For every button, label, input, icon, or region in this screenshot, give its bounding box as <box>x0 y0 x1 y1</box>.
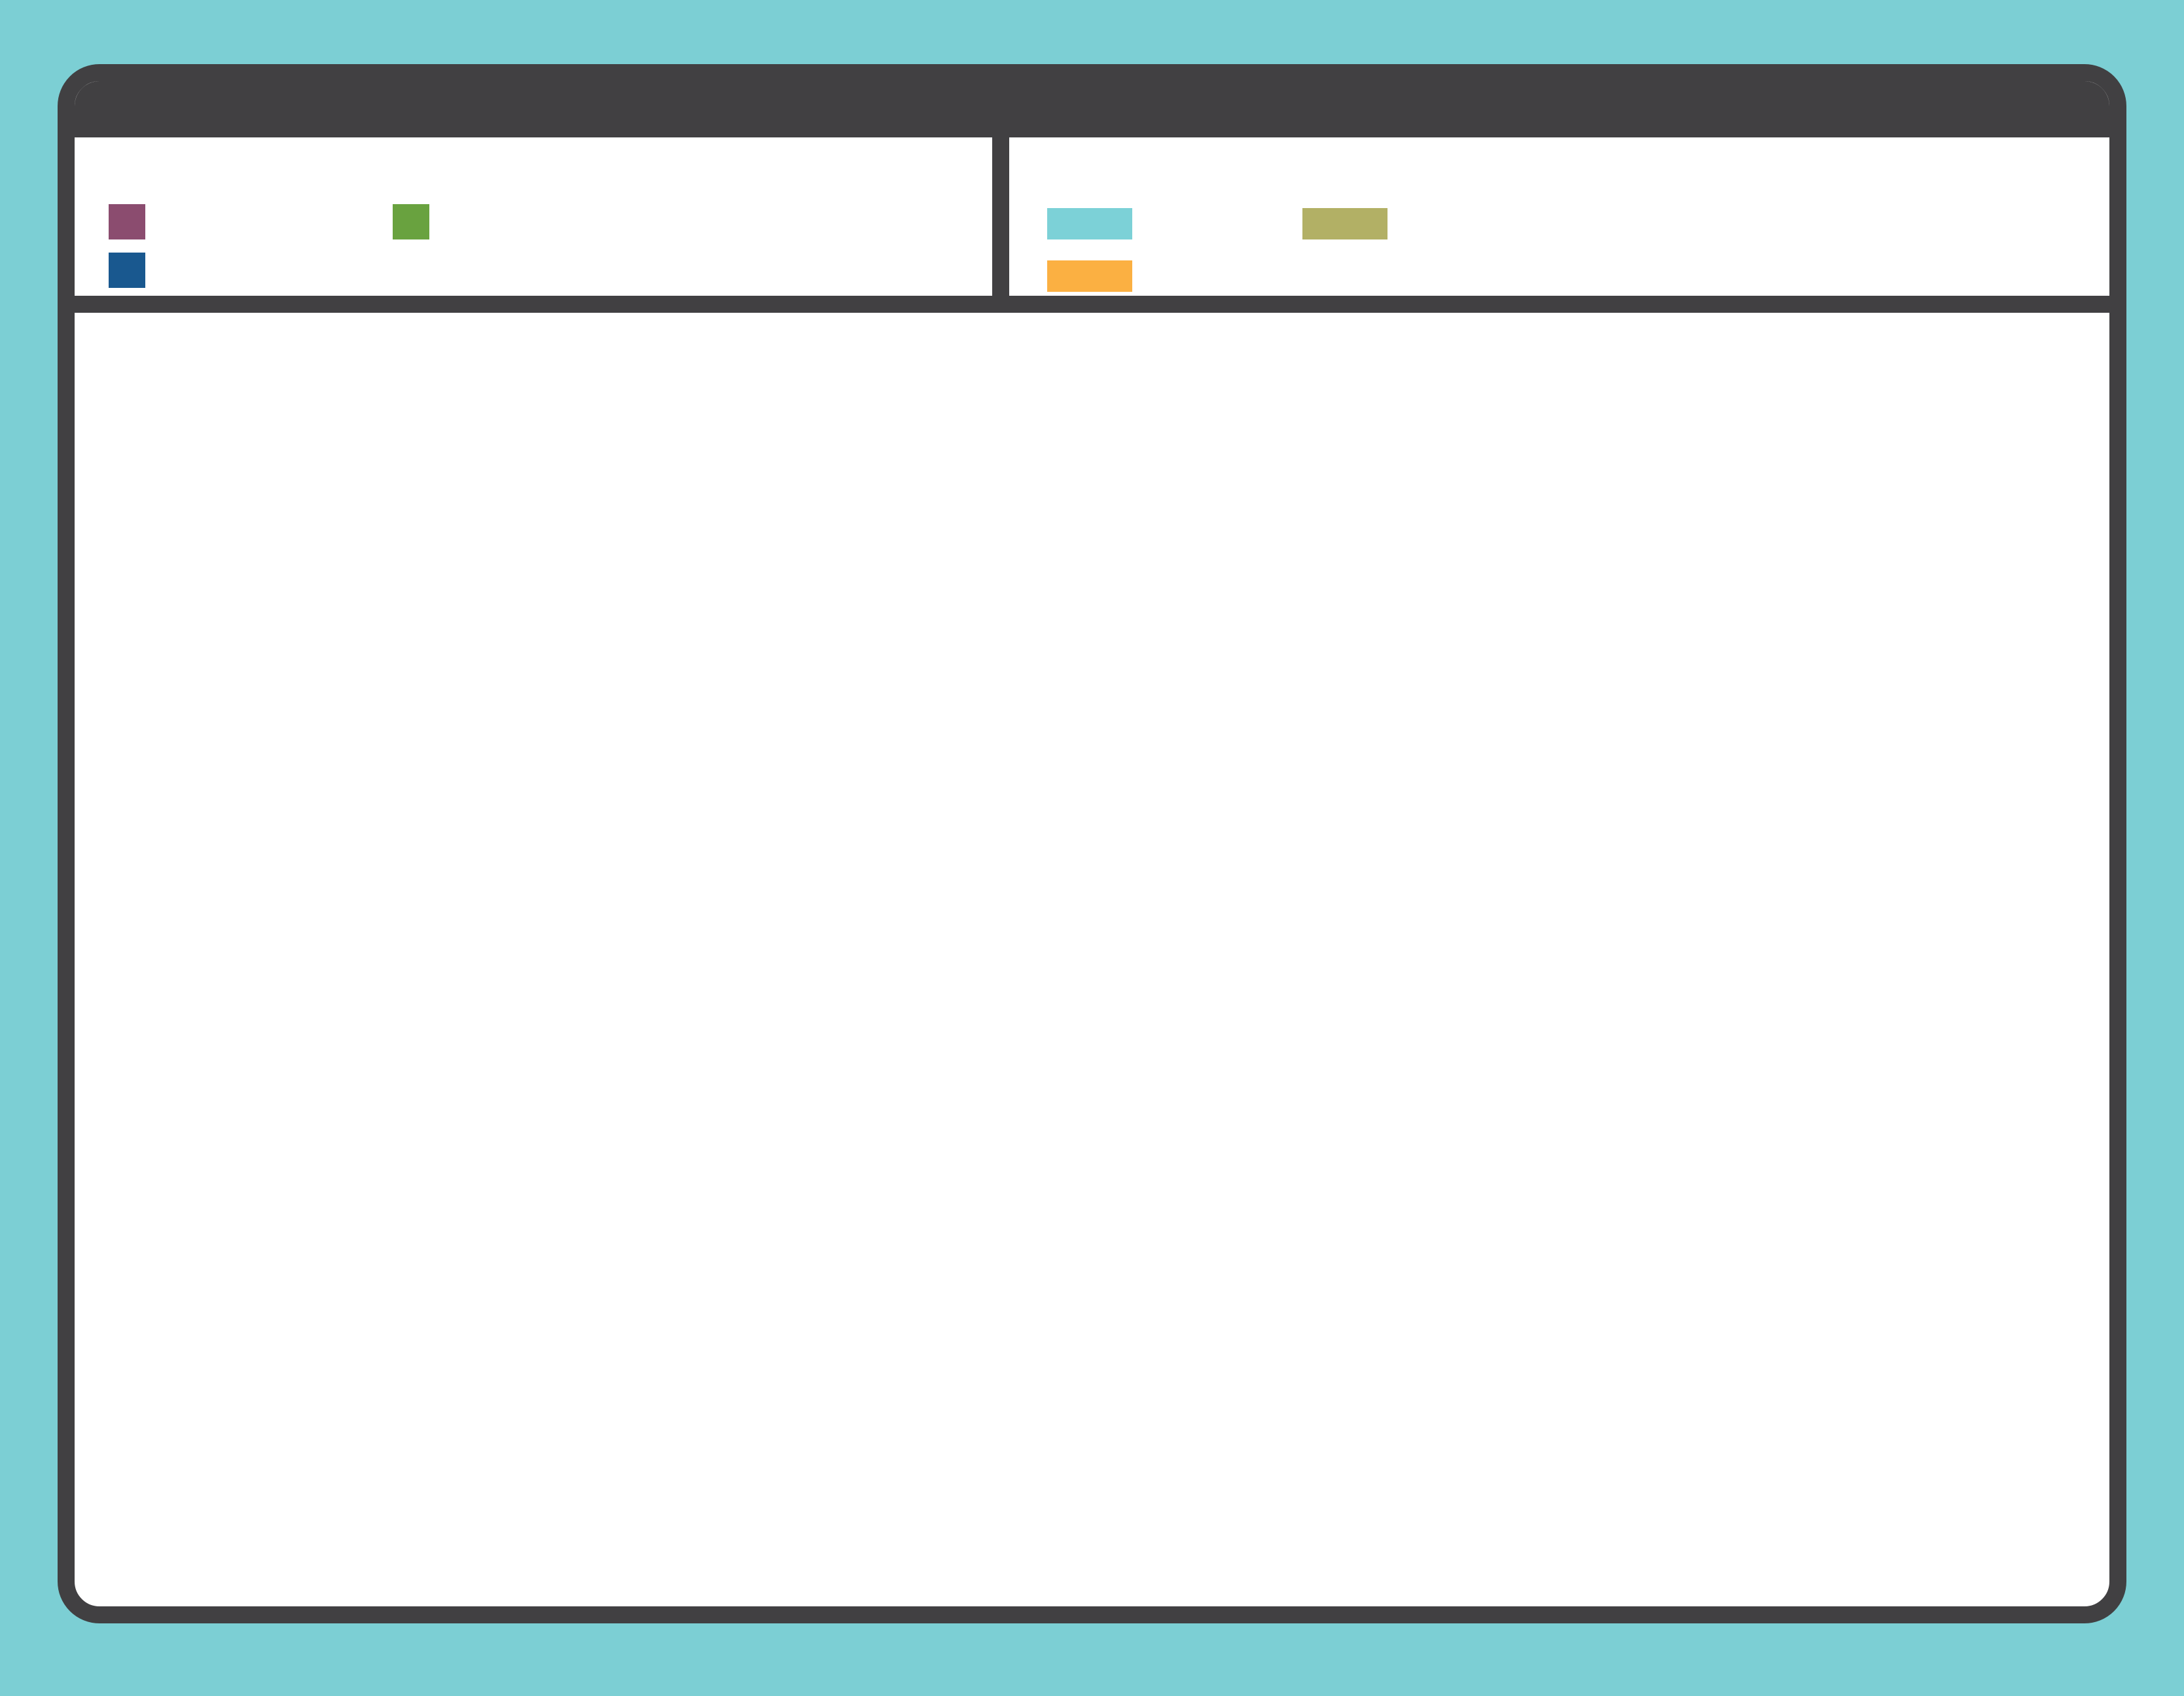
customer-lots-swatch <box>109 253 145 288</box>
one-hour-swatch <box>1047 208 1132 239</box>
all-day-street-swatch <box>1302 208 1387 239</box>
legend-bottom-rule <box>75 296 2109 313</box>
parking-spaces-badge <box>1797 10 2111 285</box>
map-poster-frame <box>58 64 2126 1623</box>
legend-divider <box>992 136 1009 296</box>
all-day-lots-swatch <box>109 204 145 239</box>
two-hour-swatch <box>1047 260 1132 292</box>
visitor-lots-swatch <box>393 204 429 239</box>
